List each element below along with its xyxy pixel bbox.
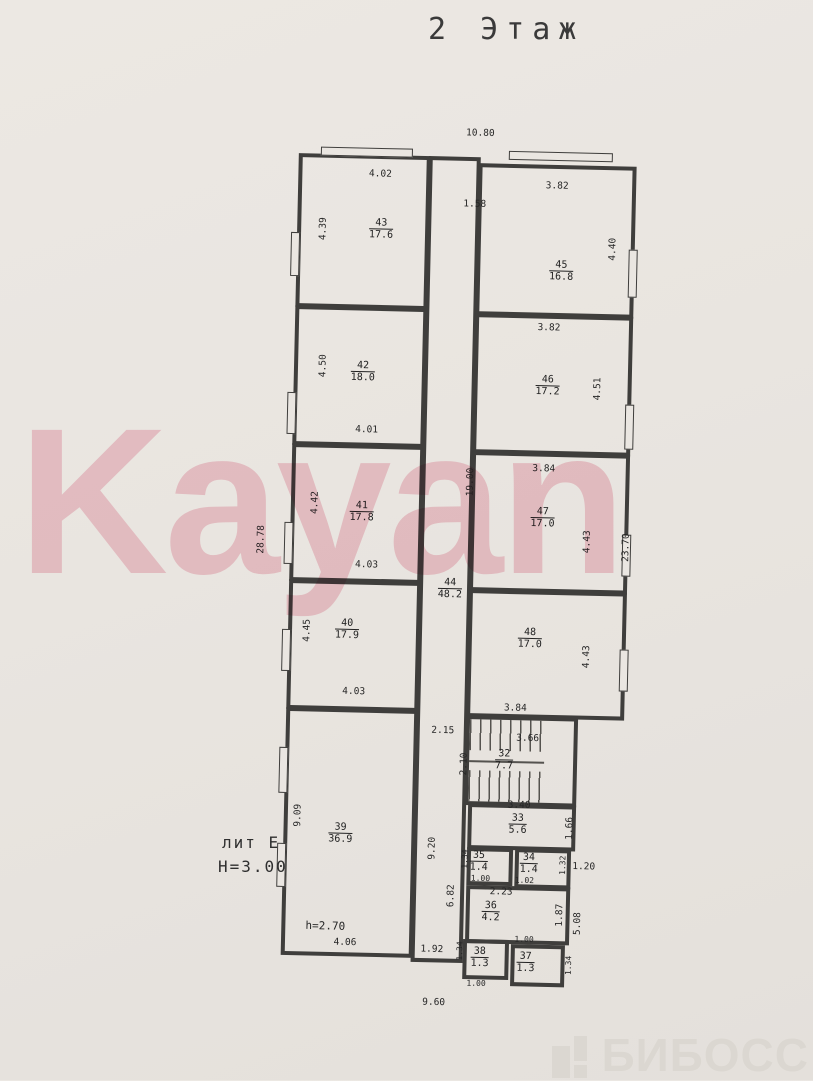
window-mark (286, 392, 296, 434)
dim-top-overall: 10.80 (466, 127, 495, 139)
dim-r47-right: 4.43 (581, 530, 593, 553)
dim-r45-top: 3.82 (546, 180, 569, 192)
dim-r43-top: 4.02 (369, 168, 392, 180)
dim-stairs-top: 3.66 (516, 733, 539, 745)
room-label-34: 341.4 (520, 852, 539, 875)
dim-r40-left: 4.45 (301, 619, 313, 642)
room-number: 32 (495, 748, 513, 760)
dim-r48-bottom: 3.84 (504, 702, 527, 714)
building-height-label: Н=3.00 (218, 857, 288, 876)
floor-plan: 4317.6 4218.0 4117.8 4017.9 3936.9 4448.… (275, 147, 646, 1017)
dim-right-overall: 23.70 (620, 533, 632, 562)
room-label-39: 3936.9 (328, 821, 353, 845)
dim-step-right: 1.20 (572, 861, 595, 873)
dim-r42-left: 4.50 (317, 354, 329, 377)
room-area: 1.4 (470, 862, 488, 873)
room-number: 46 (536, 374, 560, 387)
room-area: 17.6 (369, 229, 393, 241)
room-number: 42 (351, 360, 375, 373)
dim-r45-right: 4.40 (607, 238, 619, 261)
room-43 (295, 153, 430, 310)
room-label-37: 371.3 (516, 951, 535, 974)
stair-flight-lower (468, 770, 544, 803)
window-mark (509, 151, 613, 162)
window-mark (628, 250, 638, 298)
window-mark (278, 747, 288, 793)
room-label-48: 4817.0 (518, 627, 543, 651)
room-area: 17.9 (335, 630, 359, 642)
room-label-46: 4617.2 (535, 374, 560, 398)
room-number: 33 (509, 813, 527, 825)
room-label-32: 327.7 (495, 748, 514, 771)
room-label-36: 364.2 (481, 900, 500, 923)
dim-r38-bottom: 1.00 (466, 979, 485, 988)
room-area: 4.2 (481, 912, 499, 923)
room-number: 47 (531, 506, 555, 519)
page-title: 2 Этаж (428, 12, 584, 47)
dim-r39-left: 9.09 (292, 804, 304, 827)
dim-r40-bottom: 4.03 (342, 686, 365, 698)
room-32-stairs (464, 715, 578, 808)
dim-r46-top: 3.82 (537, 322, 560, 334)
dim-r33-top: 3.40 (508, 799, 531, 811)
room-number: 34 (520, 852, 538, 864)
room-number: 39 (328, 821, 352, 834)
dim-stairs-left: 2.10 (458, 752, 470, 775)
dim-r48-right: 4.43 (581, 645, 593, 668)
window-mark (624, 405, 634, 450)
dim-corridor-v: 19.00 (465, 468, 477, 497)
dim-r36-right: 1.87 (554, 904, 566, 927)
room-area: 36.9 (328, 833, 352, 845)
biboss-logo: БИБОСС (552, 1034, 809, 1078)
room-area: 16.8 (549, 271, 573, 283)
window-mark (284, 522, 294, 564)
dim-r37-right: 1.34 (564, 956, 573, 975)
dim-r41-bottom: 4.03 (355, 559, 378, 571)
biboss-logo-text: БИБОСС (602, 1034, 809, 1078)
room-number: 37 (517, 951, 535, 963)
room-number: 43 (369, 217, 393, 230)
room-label-42: 4218.0 (351, 360, 376, 384)
litera-label: лит Е (222, 833, 280, 852)
room-number: 40 (335, 618, 359, 631)
room-label-45: 4516.8 (549, 259, 574, 283)
dim-lower-left-v: 6.82 (445, 884, 457, 907)
room-label-43: 4317.6 (369, 217, 394, 241)
room-area: 18.0 (351, 372, 375, 384)
dim-r33-right: 1.66 (564, 817, 576, 840)
room-number: 38 (471, 946, 489, 958)
dim-stairs-gap: 2.15 (431, 725, 454, 737)
dim-r37-top: 1.00 (514, 935, 533, 944)
dim-lower-right-v: 5.08 (572, 912, 584, 935)
room-area: 17.8 (349, 512, 373, 524)
room-label-47: 4717.0 (530, 506, 555, 530)
room-area: 17.2 (535, 386, 559, 398)
room-label-44: 4448.2 (438, 577, 463, 601)
dim-r35-left: 1.34 (460, 849, 469, 868)
room-area: 17.0 (530, 518, 554, 530)
room-label-35: 351.4 (470, 850, 489, 873)
room-label-33: 335.6 (508, 813, 527, 836)
room-number: 36 (482, 900, 500, 912)
room-label-41: 4117.8 (349, 500, 374, 524)
room-number: 48 (518, 627, 542, 640)
room-area: 7.7 (495, 760, 513, 771)
room-number: 44 (438, 577, 462, 590)
dim-r43-left: 4.39 (317, 217, 329, 240)
dim-left-overall: 28.78 (255, 525, 267, 554)
room39-height-note: h=2.70 (305, 919, 345, 933)
room-area: 1.4 (520, 864, 538, 875)
dim-r47-top: 3.84 (532, 463, 555, 475)
room-number: 35 (470, 850, 488, 862)
dim-bottom-overall: 9.60 (422, 997, 445, 1009)
dim-r41-left: 4.42 (309, 491, 321, 514)
window-mark (619, 649, 629, 691)
dim-corridor-bottom: 1.92 (420, 944, 443, 956)
room-area: 1.3 (516, 963, 534, 974)
room-area: 48.2 (438, 589, 462, 601)
room-number: 45 (549, 259, 573, 272)
room-area: 5.6 (508, 825, 526, 836)
dim-r36-top: 2.23 (490, 886, 513, 898)
dim-r34-right: 1.32 (558, 856, 567, 875)
room-area: 1.3 (470, 958, 488, 969)
room-area: 17.0 (518, 639, 542, 651)
window-mark (281, 629, 291, 671)
room-number: 41 (350, 500, 374, 513)
dim-r38-left: 1.34 (455, 941, 464, 960)
biboss-grid-icon (552, 1036, 594, 1078)
room-label-38: 381.3 (470, 946, 489, 969)
dim-top-gap: 1.58 (463, 198, 486, 210)
room-48 (466, 589, 627, 721)
dim-corridor-lower-v: 9.20 (426, 837, 438, 860)
room-label-40: 4017.9 (335, 618, 360, 642)
dim-r39-bottom: 4.06 (333, 937, 356, 949)
dim-r35-bottom: 1.00 (471, 874, 490, 883)
dim-r42-bottom: 4.01 (355, 424, 378, 436)
dim-r34-bottom: 1.02 (515, 876, 534, 885)
window-mark (290, 232, 300, 276)
dim-r46-right: 4.51 (592, 377, 604, 400)
